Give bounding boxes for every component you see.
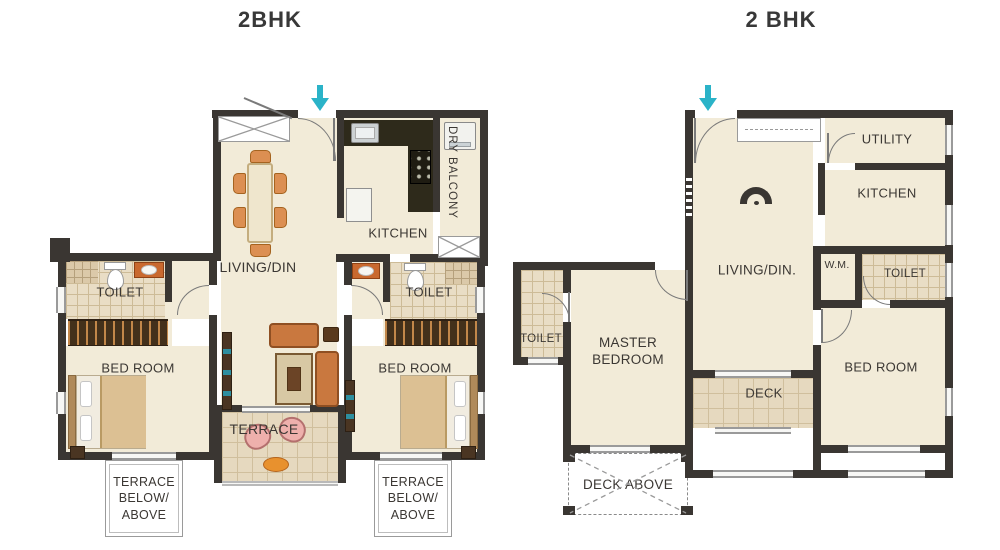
window (56, 392, 66, 414)
plan-title: 2BHK (238, 7, 302, 33)
furniture (274, 207, 287, 228)
window (713, 470, 793, 478)
plan-title: 2 BHK (745, 7, 816, 33)
dashed-x-mark (570, 455, 686, 513)
room-label-toilet-left: TOILET (520, 333, 562, 345)
furniture (250, 244, 271, 257)
room-label-bedroom-left: BED ROOM (101, 361, 174, 376)
window-x-mark (219, 117, 289, 141)
door-leaf (694, 118, 696, 163)
furniture (100, 376, 146, 448)
wall (813, 345, 821, 478)
window (848, 470, 925, 478)
wall (813, 246, 953, 254)
window (56, 287, 66, 313)
wall (685, 110, 695, 118)
door-leaf (686, 270, 688, 301)
furniture (68, 375, 76, 449)
wall (563, 365, 571, 453)
window (737, 118, 821, 142)
window (945, 263, 953, 297)
wall (214, 405, 222, 483)
wall (337, 118, 344, 218)
room-label-deck: DECK (745, 386, 782, 401)
furniture (263, 457, 289, 472)
furniture (141, 265, 157, 275)
room-label-bedroom-right: BED ROOM (378, 361, 451, 376)
door-leaf (827, 133, 829, 163)
furniture (250, 150, 271, 163)
window (528, 357, 558, 365)
wall (685, 118, 693, 177)
wall (165, 254, 172, 302)
terrace-note-left-text: TERRACE BELOW/ ABOVE (106, 474, 182, 523)
wall (685, 470, 713, 478)
window (945, 388, 953, 416)
wall (480, 110, 488, 266)
wall (58, 313, 66, 392)
wall (693, 370, 715, 378)
room-floor (337, 218, 344, 254)
room-label-living-din: LIVING/DIN (220, 259, 297, 275)
wall (791, 370, 813, 378)
furniture (274, 173, 287, 194)
wall (818, 163, 825, 170)
entry-arrow-head (311, 98, 329, 111)
furniture (80, 381, 92, 407)
wall (650, 445, 693, 453)
louver-window (685, 177, 693, 217)
window (475, 287, 485, 313)
window (715, 370, 791, 378)
door-leaf (821, 309, 823, 343)
wall (513, 357, 528, 365)
wall (737, 110, 953, 118)
wall (50, 253, 221, 261)
furniture (287, 367, 301, 391)
window (715, 427, 791, 434)
furniture (470, 375, 478, 449)
door-leaf (568, 292, 570, 322)
wall (813, 300, 862, 308)
wall (346, 452, 380, 460)
window (222, 481, 338, 486)
furniture (454, 415, 466, 441)
furniture (70, 446, 85, 459)
shower-tiles (445, 262, 477, 284)
door-leaf (333, 118, 335, 161)
wall (563, 270, 571, 293)
wall (685, 217, 693, 453)
wall (58, 261, 66, 287)
room-label-utility: UTILITY (862, 132, 913, 147)
window (590, 445, 650, 453)
room-label-terrace: TERRACE (230, 421, 299, 437)
room-label-kitchen: KITCHEN (857, 186, 916, 201)
room-label-bedroom: BED ROOM (844, 360, 917, 375)
room-label-wm: W.M. (824, 259, 849, 271)
terrace-note-left: TERRACE BELOW/ ABOVE (105, 460, 183, 537)
furniture (454, 381, 466, 407)
wall (433, 118, 440, 212)
furniture (233, 207, 246, 228)
furniture (222, 332, 232, 410)
wall (383, 254, 390, 302)
wall (336, 110, 488, 118)
wall (813, 445, 848, 453)
terrace-note-right-text: TERRACE BELOW/ ABOVE (375, 474, 451, 523)
wall (58, 452, 112, 460)
room-label-master-bedroom: MASTER BEDROOM (573, 335, 683, 369)
window (945, 205, 953, 245)
wall (688, 262, 693, 270)
wall (513, 262, 655, 270)
wall (855, 163, 953, 170)
furniture (461, 446, 476, 459)
wall (513, 270, 521, 365)
furniture (346, 188, 372, 222)
wardrobe (68, 319, 168, 346)
wall (813, 470, 848, 478)
room-label-dry-balcony: DRY BALCONY (446, 126, 458, 238)
furniture (355, 127, 375, 139)
room-label-toilet-right: TOILET (405, 285, 452, 300)
terrace-note-right: TERRACE BELOW/ ABOVE (374, 460, 452, 537)
window (848, 445, 920, 453)
furniture (233, 173, 246, 194)
shower-tiles (66, 261, 98, 283)
wall (209, 254, 217, 285)
window (112, 452, 176, 460)
furniture (323, 327, 339, 342)
room-floor (825, 170, 945, 246)
window (945, 125, 953, 155)
furniture (401, 376, 447, 448)
wall (344, 254, 352, 285)
furniture (315, 351, 339, 407)
furniture (410, 150, 431, 184)
furniture (247, 163, 273, 243)
window-x-mark (439, 237, 479, 257)
window (380, 452, 442, 460)
entry-arrow (317, 85, 323, 98)
wall (818, 170, 825, 215)
window-dash (745, 129, 813, 130)
entry-arrow (705, 85, 711, 98)
room-label-toilet-right: TOILET (884, 268, 926, 280)
furniture (269, 323, 319, 348)
window (242, 406, 310, 413)
room-label-living-din: LIVING/DIN. (718, 263, 796, 278)
wall (890, 300, 953, 308)
furniture (80, 415, 92, 441)
wardrobe (385, 319, 477, 346)
furniture (358, 266, 374, 276)
room-label-kitchen: KITCHEN (368, 226, 427, 241)
floor-plan-sheet: 2BHK LIVING/DIN KITCHEN DRY BALCONY TOIL… (0, 0, 1000, 550)
wall (563, 322, 571, 365)
entry-arrow-head (699, 98, 717, 111)
furniture (345, 380, 355, 432)
room-label-toilet-left: TOILET (96, 285, 143, 300)
fan-icon-dot (754, 201, 759, 205)
wall (563, 445, 590, 453)
